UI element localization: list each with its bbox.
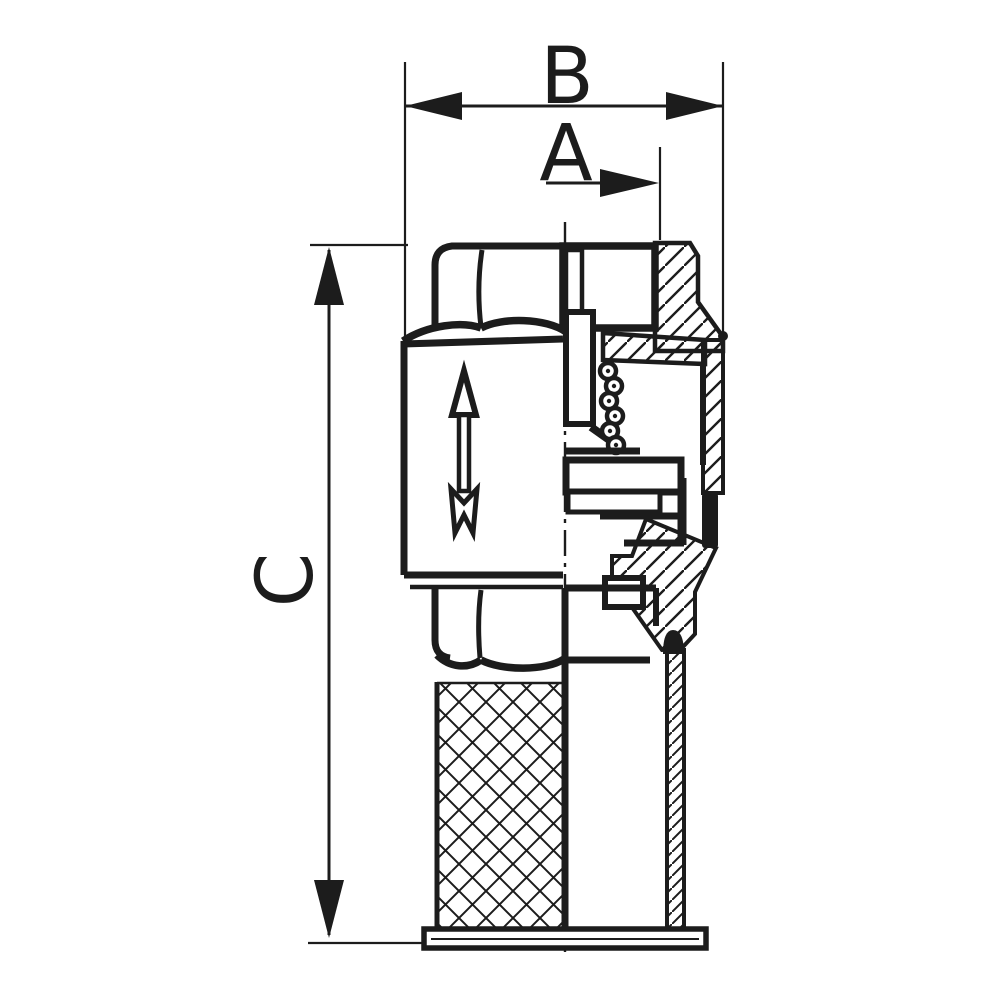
flow-arrow-shaft	[459, 415, 469, 491]
technical-drawing-page: B A C	[0, 0, 1000, 1000]
retainer-step-box	[605, 578, 643, 607]
spring-bead-center	[612, 384, 616, 388]
spring-bead-center	[607, 399, 611, 403]
dim-a-arrowhead	[600, 169, 659, 197]
flow-direction-arrow	[451, 371, 477, 533]
tube-wall-hatch	[667, 648, 684, 929]
nut-top-left-edge	[435, 246, 563, 328]
valve-body-block	[403, 339, 563, 587]
nut-bottom-left-edge	[435, 588, 450, 658]
dim-c-arrowhead-top	[314, 247, 344, 305]
nut-bottom-chamfer-right	[481, 659, 564, 668]
valve-assembly	[403, 243, 723, 948]
section-seat-band-hatched	[603, 333, 705, 364]
flow-arrow-head	[452, 371, 476, 415]
spring-bead-center	[608, 429, 612, 433]
mesh-fill	[437, 682, 563, 929]
spring-bead-center	[614, 443, 618, 447]
dimension-a: A	[539, 109, 660, 240]
bottom-cap-plate	[424, 929, 706, 948]
union-nut-top	[403, 246, 566, 341]
dim-b-arrowhead-left	[405, 92, 462, 120]
nut-top-chamfer-right	[481, 321, 566, 332]
nut-bottom-chamfer-left	[437, 655, 481, 666]
section-cap-hatched	[655, 243, 723, 351]
disc-body	[566, 460, 681, 492]
union-nut-bottom	[435, 588, 564, 668]
dim-c-arrowhead-bottom	[314, 880, 344, 938]
dim-b-arrowhead-right	[666, 92, 723, 120]
dimension-c: C	[241, 245, 427, 943]
body-top-edge	[403, 339, 563, 344]
dim-c-label: C	[241, 553, 331, 607]
outlet-tube-section	[663, 630, 684, 929]
spring-bead-center	[606, 369, 610, 373]
spring-bead-center	[613, 414, 617, 418]
strainer-mesh	[437, 682, 563, 929]
dim-a-label: A	[539, 109, 592, 199]
flow-arrow-fletching	[451, 489, 477, 533]
nut-top-facet-line	[479, 250, 482, 327]
valve-stem	[566, 312, 593, 424]
check-valve-section-drawing: B A C	[0, 0, 1000, 1000]
disc-lower-step	[568, 492, 660, 512]
nut-bottom-facet-line	[479, 590, 481, 658]
retainer-notch	[702, 493, 718, 548]
